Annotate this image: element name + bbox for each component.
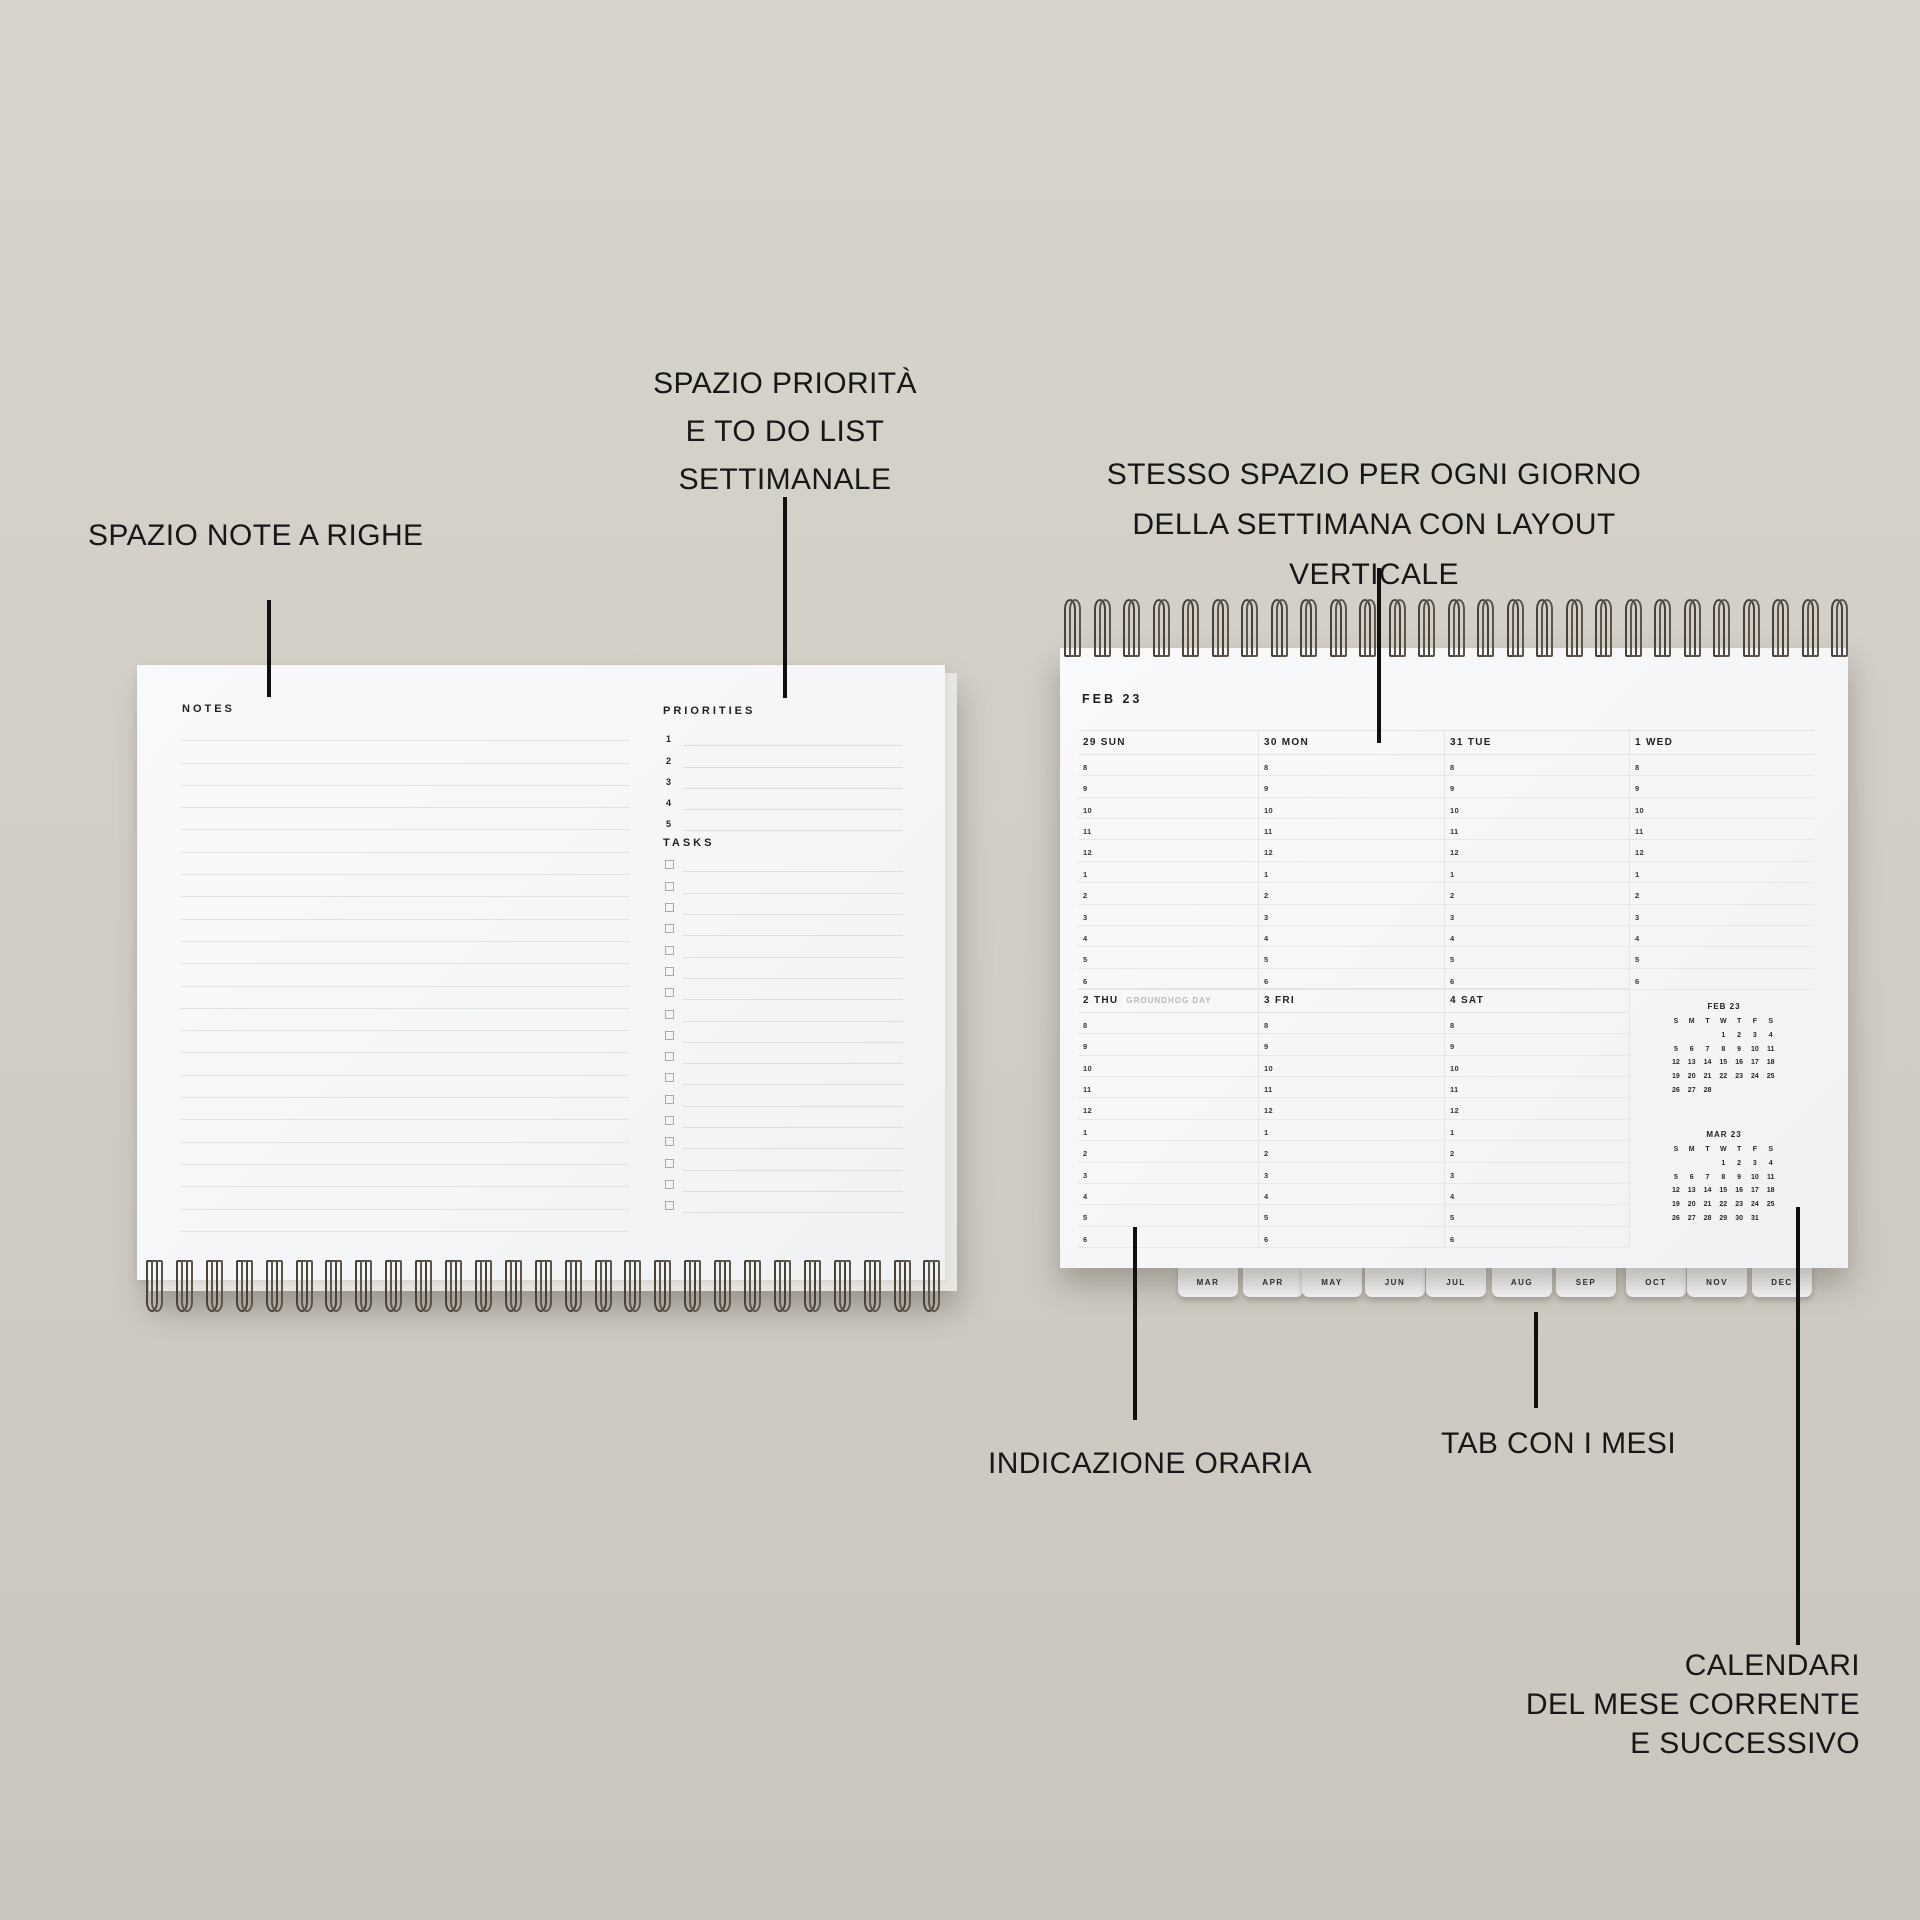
mini-calendar-date: 13 bbox=[1684, 1056, 1700, 1070]
note-line bbox=[180, 1031, 629, 1053]
task-row bbox=[665, 1149, 903, 1170]
hour-label: 11 bbox=[1635, 827, 1644, 836]
mini-calendar-dow: S bbox=[1763, 1143, 1779, 1157]
mini-calendar-grid: SMTWTFS123456789101112131415161718192021… bbox=[1668, 1015, 1780, 1098]
wire-loop bbox=[864, 1260, 879, 1312]
mini-calendar-date: 18 bbox=[1763, 1056, 1779, 1070]
mini-calendar-date bbox=[1747, 1084, 1763, 1098]
mini-calendar-date: 24 bbox=[1747, 1070, 1763, 1084]
mini-calendar-date: 9 bbox=[1731, 1171, 1747, 1185]
annotation-calendars: CALENDARI DEL MESE CORRENTE E SUCCESSIVO bbox=[1526, 1646, 1860, 1763]
task-row bbox=[665, 1107, 903, 1128]
wire-loop bbox=[385, 1260, 400, 1312]
hour-cell: 11 bbox=[1630, 819, 1815, 840]
hour-cell: 1 bbox=[1445, 1120, 1629, 1141]
annotation-calendars-line2: DEL MESE CORRENTE bbox=[1526, 1685, 1860, 1724]
wire bbox=[719, 1260, 731, 1312]
wire-loop bbox=[236, 1260, 251, 1312]
hour-label: 12 bbox=[1635, 848, 1644, 857]
task-line bbox=[683, 1191, 903, 1192]
mini-calendar-dow: W bbox=[1715, 1143, 1731, 1157]
annotation-line-hours bbox=[1133, 1227, 1137, 1420]
mini-calendar-date: 12 bbox=[1668, 1056, 1684, 1070]
hour-label: 5 bbox=[1264, 955, 1268, 964]
month-tab-label: OCT bbox=[1645, 1275, 1666, 1287]
day-column: 3 FRI89101112123456 bbox=[1258, 989, 1444, 1248]
month-tab-label: NOV bbox=[1706, 1275, 1728, 1287]
hour-cell: 9 bbox=[1078, 776, 1258, 797]
note-line bbox=[180, 830, 629, 852]
hour-label: 3 bbox=[1083, 1171, 1087, 1180]
month-tab-label: AUG bbox=[1511, 1275, 1533, 1287]
wire-loop bbox=[804, 1260, 819, 1312]
wire bbox=[390, 1260, 402, 1312]
task-line bbox=[683, 935, 903, 936]
task-line bbox=[683, 1127, 903, 1128]
wire bbox=[1836, 599, 1848, 657]
wire-loop bbox=[505, 1260, 520, 1312]
product-diagram-stage: SPAZIO NOTE A RIGHE SPAZIO PRIORITÀ E TO… bbox=[0, 0, 1920, 1920]
hour-cell: 10 bbox=[1259, 1056, 1444, 1077]
mini-calendar-date: 2 bbox=[1731, 1029, 1747, 1043]
hour-label: 6 bbox=[1264, 1235, 1268, 1244]
hour-cell: 2 bbox=[1259, 1141, 1444, 1162]
hour-cell: 2 bbox=[1078, 1141, 1258, 1162]
hour-label: 8 bbox=[1083, 763, 1087, 772]
hour-label: 9 bbox=[1450, 784, 1454, 793]
task-line bbox=[683, 999, 903, 1000]
hour-label: 8 bbox=[1450, 763, 1454, 772]
priority-number: 4 bbox=[666, 798, 684, 810]
hour-cell: 3 bbox=[1259, 1163, 1444, 1184]
hour-label: 9 bbox=[1264, 784, 1268, 793]
task-line bbox=[683, 978, 903, 979]
annotation-calendars-line1: CALENDARI bbox=[1526, 1646, 1860, 1685]
priority-number: 2 bbox=[666, 756, 684, 768]
mini-calendar-date: 15 bbox=[1715, 1056, 1731, 1070]
hour-cell: 1 bbox=[1259, 1120, 1444, 1141]
hour-cell: 6 bbox=[1445, 969, 1629, 990]
month-tab-jul: JUL bbox=[1426, 1264, 1486, 1297]
task-checkbox bbox=[665, 1010, 674, 1019]
mini-calendar-dow: T bbox=[1700, 1143, 1716, 1157]
hour-cell: 10 bbox=[1445, 1056, 1629, 1077]
note-line bbox=[180, 808, 629, 830]
hour-cell: 12 bbox=[1078, 1098, 1258, 1119]
hour-label: 10 bbox=[1083, 1064, 1092, 1073]
task-line bbox=[683, 1148, 903, 1149]
annotation-priorities-line1: SPAZIO PRIORITÀ bbox=[600, 360, 970, 408]
hour-cell: 6 bbox=[1445, 1227, 1629, 1248]
wire bbox=[1512, 599, 1524, 657]
wire-loop bbox=[684, 1260, 699, 1312]
task-line bbox=[683, 1021, 903, 1022]
task-row bbox=[665, 1064, 903, 1085]
hour-label: 6 bbox=[1450, 977, 1454, 986]
hour-cell: 6 bbox=[1259, 1227, 1444, 1248]
hour-cell: 6 bbox=[1078, 969, 1258, 990]
mini-calendar-date: 19 bbox=[1668, 1198, 1684, 1212]
mini-calendar-date: 27 bbox=[1684, 1212, 1700, 1226]
task-checkbox bbox=[665, 946, 674, 955]
wire bbox=[1364, 599, 1376, 657]
wire-loop bbox=[1477, 599, 1492, 657]
mini-calendars: FEB 23SMTWTFS123456789101112131415161718… bbox=[1629, 988, 1815, 1246]
hour-cell: 1 bbox=[1078, 1120, 1258, 1141]
task-row bbox=[665, 936, 903, 957]
wire-loop bbox=[1153, 599, 1168, 657]
note-line bbox=[180, 741, 629, 763]
wire-loop bbox=[624, 1260, 639, 1312]
hour-cell: 1 bbox=[1078, 862, 1258, 883]
note-line bbox=[180, 987, 629, 1009]
mini-calendar-date bbox=[1668, 1157, 1684, 1171]
mini-calendar-date: 12 bbox=[1668, 1184, 1684, 1198]
hour-label: 1 bbox=[1083, 870, 1087, 879]
hour-cell: 9 bbox=[1630, 776, 1815, 797]
hour-label: 4 bbox=[1264, 1192, 1268, 1201]
wire bbox=[510, 1260, 522, 1312]
hour-cell: 8 bbox=[1445, 1013, 1629, 1034]
month-tab-dec: DEC bbox=[1752, 1264, 1812, 1297]
wire-loop bbox=[714, 1260, 729, 1312]
mini-calendar-date: 3 bbox=[1747, 1157, 1763, 1171]
task-line bbox=[683, 1063, 903, 1064]
day-column: 29 SUN89101112123456 bbox=[1078, 731, 1258, 990]
wire bbox=[1099, 599, 1111, 657]
wire bbox=[1276, 599, 1288, 657]
month-tab-label: MAY bbox=[1321, 1275, 1343, 1287]
hour-cell: 1 bbox=[1259, 862, 1444, 883]
weekly-planner-page: FEB 23 29 SUN8910111212345630 MON8910111… bbox=[1060, 648, 1848, 1268]
hour-cell: 4 bbox=[1259, 1184, 1444, 1205]
wire-loop bbox=[266, 1260, 281, 1312]
hour-label: 1 bbox=[1264, 1128, 1268, 1137]
wire bbox=[1217, 599, 1229, 657]
mini-calendar-date: 25 bbox=[1763, 1070, 1779, 1084]
wire-loop bbox=[894, 1260, 909, 1312]
notes-label: NOTES bbox=[182, 703, 235, 715]
hour-cell: 12 bbox=[1259, 1098, 1444, 1119]
day-header: 3 FRI bbox=[1259, 989, 1444, 1013]
hour-label: 4 bbox=[1264, 934, 1268, 943]
annotation-line-calendars bbox=[1796, 1207, 1800, 1645]
note-line bbox=[180, 875, 629, 897]
mini-calendar-dow: S bbox=[1763, 1015, 1779, 1029]
priority-row: 5 bbox=[666, 810, 903, 831]
task-checkbox bbox=[665, 1031, 674, 1040]
mini-calendar-date: 13 bbox=[1684, 1184, 1700, 1198]
note-line bbox=[180, 719, 629, 741]
day-header: 29 SUN bbox=[1078, 731, 1258, 755]
wire-loop bbox=[654, 1260, 669, 1312]
mini-calendar-date bbox=[1700, 1029, 1716, 1043]
day-column: 30 MON89101112123456 bbox=[1258, 731, 1444, 990]
task-row bbox=[665, 1043, 903, 1064]
mini-calendar-date bbox=[1731, 1084, 1747, 1098]
hour-cell: 9 bbox=[1259, 1034, 1444, 1055]
task-checkbox bbox=[665, 1116, 674, 1125]
note-line bbox=[180, 1210, 629, 1232]
note-line bbox=[180, 764, 629, 786]
wire-loop bbox=[1448, 599, 1463, 657]
hour-cell: 4 bbox=[1078, 1184, 1258, 1205]
mini-calendar-dow: T bbox=[1700, 1015, 1716, 1029]
task-checkbox bbox=[665, 860, 674, 869]
hour-cell: 9 bbox=[1078, 1034, 1258, 1055]
wire-loop bbox=[1566, 599, 1581, 657]
task-row bbox=[665, 1000, 903, 1021]
hour-cell: 2 bbox=[1259, 883, 1444, 904]
task-checkbox bbox=[665, 1201, 674, 1210]
wire-loop bbox=[296, 1260, 311, 1312]
mini-calendar-title: FEB 23 bbox=[1668, 1002, 1780, 1011]
note-line bbox=[180, 786, 629, 808]
mini-calendar-date: 6 bbox=[1684, 1043, 1700, 1057]
mini-calendar-date: 4 bbox=[1763, 1029, 1779, 1043]
hour-cell: 3 bbox=[1445, 905, 1629, 926]
hour-label: 3 bbox=[1450, 1171, 1454, 1180]
wire-loop bbox=[923, 1260, 938, 1312]
task-line bbox=[683, 1212, 903, 1213]
task-line bbox=[683, 871, 903, 872]
hour-label: 4 bbox=[1083, 934, 1087, 943]
wire bbox=[271, 1260, 283, 1312]
hour-label: 11 bbox=[1083, 827, 1092, 836]
mini-calendar-dow: W bbox=[1715, 1015, 1731, 1029]
mini-calendar-date: 28 bbox=[1700, 1212, 1716, 1226]
hour-cell: 5 bbox=[1078, 1205, 1258, 1226]
priority-number: 1 bbox=[666, 734, 684, 746]
mini-calendar-date: 10 bbox=[1747, 1171, 1763, 1185]
task-row bbox=[665, 915, 903, 936]
wire bbox=[1600, 599, 1612, 657]
priorities-label: PRIORITIES bbox=[663, 705, 755, 717]
task-checkbox bbox=[665, 1052, 674, 1061]
annotation-notes: SPAZIO NOTE A RIGHE bbox=[88, 512, 423, 560]
wire-loop bbox=[1300, 599, 1315, 657]
hour-label: 6 bbox=[1450, 1235, 1454, 1244]
hour-cell: 2 bbox=[1445, 1141, 1629, 1162]
mini-calendar-date: 25 bbox=[1763, 1198, 1779, 1212]
wire bbox=[629, 1260, 641, 1312]
hour-cell: 4 bbox=[1078, 926, 1258, 947]
mini-calendar-date bbox=[1763, 1212, 1779, 1226]
mini-calendar-date: 23 bbox=[1731, 1070, 1747, 1084]
wire-loop bbox=[1684, 599, 1699, 657]
wire-loop bbox=[1743, 599, 1758, 657]
wire-loop bbox=[1536, 599, 1551, 657]
hour-cell: 12 bbox=[1445, 840, 1629, 861]
mini-calendar-dow: F bbox=[1747, 1015, 1763, 1029]
task-checkbox bbox=[665, 882, 674, 891]
priority-rows: 12345 bbox=[666, 725, 903, 831]
wire bbox=[1394, 599, 1406, 657]
hour-cell: 2 bbox=[1630, 883, 1815, 904]
note-line bbox=[180, 1165, 629, 1187]
wire bbox=[779, 1260, 791, 1312]
wire-loop bbox=[1123, 599, 1138, 657]
task-row bbox=[665, 1171, 903, 1192]
annotation-tabs: TAB CON I MESI bbox=[1441, 1420, 1676, 1468]
wire-loop bbox=[565, 1260, 580, 1312]
hour-cell: 11 bbox=[1445, 819, 1629, 840]
wire-loop bbox=[206, 1260, 221, 1312]
wire bbox=[689, 1260, 701, 1312]
hour-label: 10 bbox=[1264, 1064, 1273, 1073]
mini-calendar-date: 14 bbox=[1700, 1184, 1716, 1198]
mini-calendar-date: 3 bbox=[1747, 1029, 1763, 1043]
mini-calendar-date: 8 bbox=[1715, 1043, 1731, 1057]
mini-calendar-date: 18 bbox=[1763, 1184, 1779, 1198]
day-label: 31 TUE bbox=[1450, 737, 1492, 748]
hour-label: 12 bbox=[1264, 848, 1273, 857]
day-header: 2 THUGROUNDHOG DAY bbox=[1078, 989, 1258, 1013]
hour-label: 4 bbox=[1450, 934, 1454, 943]
planner-title: FEB 23 bbox=[1082, 692, 1142, 706]
note-line bbox=[180, 964, 629, 986]
hour-cell: 3 bbox=[1630, 905, 1815, 926]
annotation-hours: INDICAZIONE ORARIA bbox=[988, 1440, 1312, 1488]
day-label: 4 SAT bbox=[1450, 995, 1484, 1006]
hour-label: 9 bbox=[1083, 784, 1087, 793]
week-grid-top: 29 SUN8910111212345630 MON89101112123456… bbox=[1078, 730, 1815, 990]
mini-calendar-date: 22 bbox=[1715, 1198, 1731, 1212]
annotation-line-same-space bbox=[1377, 568, 1381, 743]
task-line bbox=[683, 914, 903, 915]
priority-line bbox=[684, 788, 903, 789]
mini-calendar-dow: M bbox=[1684, 1143, 1700, 1157]
wire bbox=[1748, 599, 1760, 657]
hour-label: 1 bbox=[1450, 870, 1454, 879]
mini-calendar-date: 2 bbox=[1731, 1157, 1747, 1171]
wire bbox=[600, 1260, 612, 1312]
task-row bbox=[665, 1085, 903, 1106]
mini-calendar-date: 28 bbox=[1700, 1084, 1716, 1098]
hour-cell: 11 bbox=[1259, 819, 1444, 840]
hour-cell: 6 bbox=[1078, 1227, 1258, 1248]
hour-label: 2 bbox=[1264, 891, 1268, 900]
priority-line bbox=[684, 767, 903, 768]
mini-calendar-date: 14 bbox=[1700, 1056, 1716, 1070]
mini-calendar-date: 7 bbox=[1700, 1043, 1716, 1057]
annotation-line-notes bbox=[267, 600, 271, 697]
task-line bbox=[683, 1170, 903, 1171]
hour-cell: 12 bbox=[1630, 840, 1815, 861]
wire bbox=[1423, 599, 1435, 657]
month-tab-label: JUN bbox=[1385, 1275, 1406, 1287]
hour-label: 2 bbox=[1450, 1149, 1454, 1158]
hour-label: 9 bbox=[1635, 784, 1639, 793]
mini-calendar-date bbox=[1668, 1029, 1684, 1043]
hour-label: 4 bbox=[1450, 1192, 1454, 1201]
mini-calendar-date bbox=[1715, 1084, 1731, 1098]
hour-label: 3 bbox=[1264, 1171, 1268, 1180]
mini-calendar-date: 1 bbox=[1715, 1157, 1731, 1171]
note-line bbox=[180, 942, 629, 964]
mini-calendar: FEB 23SMTWTFS123456789101112131415161718… bbox=[1668, 1002, 1780, 1098]
hour-cell: 1 bbox=[1630, 862, 1815, 883]
task-checkbox bbox=[665, 924, 674, 933]
hour-label: 12 bbox=[1450, 1106, 1459, 1115]
mini-calendar-date: 16 bbox=[1731, 1184, 1747, 1198]
hour-cell: 3 bbox=[1078, 905, 1258, 926]
hour-label: 11 bbox=[1264, 1085, 1273, 1094]
task-checkbox bbox=[665, 1095, 674, 1104]
task-row bbox=[665, 979, 903, 1000]
hour-cell: 11 bbox=[1078, 819, 1258, 840]
hour-cell: 8 bbox=[1630, 755, 1815, 776]
wire bbox=[1069, 599, 1081, 657]
hour-label: 3 bbox=[1635, 913, 1639, 922]
wire-loop bbox=[1212, 599, 1227, 657]
hour-cell: 11 bbox=[1259, 1077, 1444, 1098]
hour-label: 10 bbox=[1083, 806, 1092, 815]
hour-cell: 6 bbox=[1259, 969, 1444, 990]
mini-calendar-date bbox=[1763, 1084, 1779, 1098]
task-checkbox bbox=[665, 1073, 674, 1082]
hour-label: 2 bbox=[1450, 891, 1454, 900]
hour-label: 8 bbox=[1635, 763, 1639, 772]
mini-calendar-date: 11 bbox=[1763, 1171, 1779, 1185]
hour-label: 11 bbox=[1450, 827, 1459, 836]
month-tab-may: MAY bbox=[1302, 1264, 1362, 1297]
hour-label: 1 bbox=[1264, 870, 1268, 879]
mini-calendar-date bbox=[1684, 1029, 1700, 1043]
task-row bbox=[665, 1128, 903, 1149]
mini-calendar-dow: T bbox=[1731, 1015, 1747, 1029]
hour-cell: 8 bbox=[1078, 1013, 1258, 1034]
mini-calendar-date: 30 bbox=[1731, 1212, 1747, 1226]
mini-calendar-date: 1 bbox=[1715, 1029, 1731, 1043]
mini-calendar-dow: M bbox=[1684, 1015, 1700, 1029]
wire-loop bbox=[325, 1260, 340, 1312]
wire bbox=[570, 1260, 582, 1312]
day-label: 2 THU bbox=[1083, 995, 1118, 1006]
wire-loop bbox=[1094, 599, 1109, 657]
hour-cell: 5 bbox=[1445, 1205, 1629, 1226]
wire bbox=[809, 1260, 821, 1312]
month-tab-oct: OCT bbox=[1626, 1264, 1686, 1297]
annotation-same-space-line1: STESSO SPAZIO PER OGNI GIORNO bbox=[1072, 450, 1676, 500]
mini-calendar-date: 16 bbox=[1731, 1056, 1747, 1070]
mini-calendar-date: 17 bbox=[1747, 1184, 1763, 1198]
hour-label: 8 bbox=[1083, 1021, 1087, 1030]
wire-loop bbox=[1064, 599, 1079, 657]
task-line bbox=[683, 1106, 903, 1107]
hour-label: 5 bbox=[1083, 955, 1087, 964]
hour-cell: 11 bbox=[1078, 1077, 1258, 1098]
task-checkbox bbox=[665, 1159, 674, 1168]
wire-loop bbox=[595, 1260, 610, 1312]
note-lines bbox=[180, 719, 629, 1232]
task-line bbox=[683, 893, 903, 894]
mini-calendar-date: 15 bbox=[1715, 1184, 1731, 1198]
wire bbox=[1335, 599, 1347, 657]
task-rows bbox=[665, 851, 903, 1213]
hour-cell: 9 bbox=[1259, 776, 1444, 797]
mini-calendar-date: 8 bbox=[1715, 1171, 1731, 1185]
wire bbox=[420, 1260, 432, 1312]
mini-calendar-date: 31 bbox=[1747, 1212, 1763, 1226]
day-note: GROUNDHOG DAY bbox=[1126, 996, 1211, 1005]
hour-cell: 4 bbox=[1630, 926, 1815, 947]
hour-label: 6 bbox=[1264, 977, 1268, 986]
task-row bbox=[665, 872, 903, 893]
wire bbox=[1718, 599, 1730, 657]
wire bbox=[1158, 599, 1170, 657]
hour-label: 6 bbox=[1635, 977, 1639, 986]
